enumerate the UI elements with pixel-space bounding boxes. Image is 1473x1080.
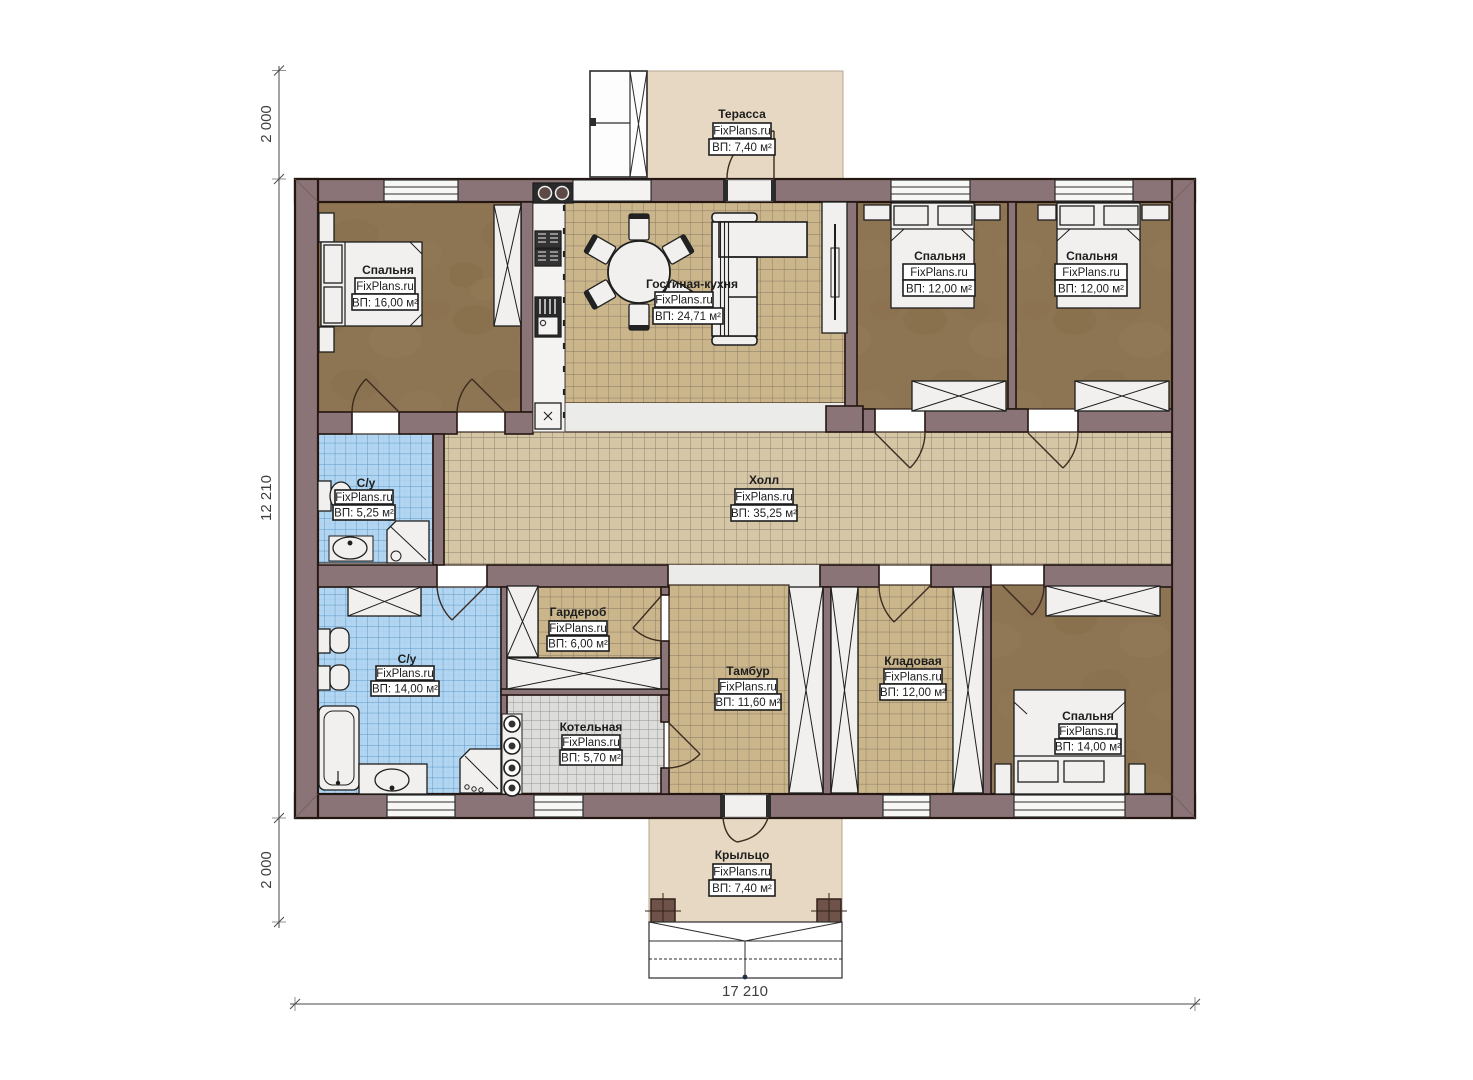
svg-text:2 000: 2 000 [258, 851, 275, 889]
svg-text:Гостиная-кухня: Гостиная-кухня [646, 277, 738, 291]
svg-text:ВП: 14,00 м²: ВП: 14,00 м² [372, 684, 438, 696]
svg-text:ВП: 12,00 м²: ВП: 12,00 м² [906, 284, 972, 296]
svg-text:ВП: 11,60 м²: ВП: 11,60 м² [715, 697, 780, 709]
svg-text:ВП: 7,40 м²: ВП: 7,40 м² [712, 142, 772, 154]
svg-text:FixPlans.ru: FixPlans.ru [549, 623, 607, 635]
svg-text:FixPlans.ru: FixPlans.ru [376, 668, 434, 680]
svg-text:FixPlans.ru: FixPlans.ru [735, 492, 793, 504]
svg-text:Тамбур: Тамбур [726, 664, 770, 678]
svg-text:ВП: 5,70 м²: ВП: 5,70 м² [561, 753, 621, 765]
svg-text:Крыльцо: Крыльцо [715, 848, 770, 862]
svg-text:Спальня: Спальня [914, 249, 966, 263]
svg-text:С/у: С/у [398, 652, 417, 666]
svg-text:Терасса: Терасса [718, 107, 766, 121]
svg-text:ВП: 6,00 м²: ВП: 6,00 м² [548, 639, 608, 651]
svg-text:Спальня: Спальня [1062, 709, 1114, 723]
svg-text:FixPlans.ru: FixPlans.ru [713, 867, 771, 879]
svg-text:ВП: 16,00 м²: ВП: 16,00 м² [352, 298, 418, 310]
svg-text:С/у: С/у [357, 476, 376, 490]
svg-text:Спальня: Спальня [1066, 249, 1118, 263]
svg-text:ВП: 35,25 м²: ВП: 35,25 м² [731, 508, 797, 520]
svg-text:17 210: 17 210 [722, 983, 768, 1000]
svg-text:Кладовая: Кладовая [884, 654, 941, 668]
svg-text:FixPlans.ru: FixPlans.ru [884, 672, 942, 684]
svg-text:FixPlans.ru: FixPlans.ru [562, 737, 620, 749]
svg-text:ВП: 7,40 м²: ВП: 7,40 м² [712, 883, 772, 895]
svg-text:FixPlans.ru: FixPlans.ru [356, 281, 414, 293]
svg-text:ВП: 24,71 м²: ВП: 24,71 м² [655, 311, 721, 323]
svg-text:ВП: 12,00 м²: ВП: 12,00 м² [880, 687, 946, 699]
svg-text:Спальня: Спальня [362, 263, 414, 277]
svg-text:ВП: 12,00 м²: ВП: 12,00 м² [1058, 284, 1124, 296]
svg-text:2 000: 2 000 [258, 105, 275, 143]
svg-text:Котельная: Котельная [560, 720, 623, 734]
svg-text:12 210: 12 210 [258, 475, 275, 521]
svg-text:Холл: Холл [749, 473, 779, 487]
svg-text:FixPlans.ru: FixPlans.ru [719, 682, 777, 694]
svg-text:ВП: 5,25 м²: ВП: 5,25 м² [334, 508, 394, 520]
svg-text:FixPlans.ru: FixPlans.ru [1062, 267, 1120, 279]
svg-text:FixPlans.ru: FixPlans.ru [655, 295, 713, 307]
svg-text:FixPlans.ru: FixPlans.ru [1059, 726, 1117, 738]
svg-text:ВП: 14,00 м²: ВП: 14,00 м² [1055, 742, 1121, 754]
svg-text:FixPlans.ru: FixPlans.ru [335, 492, 393, 504]
svg-text:FixPlans.ru: FixPlans.ru [713, 126, 771, 138]
svg-text:Гардероб: Гардероб [550, 605, 607, 619]
svg-text:FixPlans.ru: FixPlans.ru [910, 267, 968, 279]
